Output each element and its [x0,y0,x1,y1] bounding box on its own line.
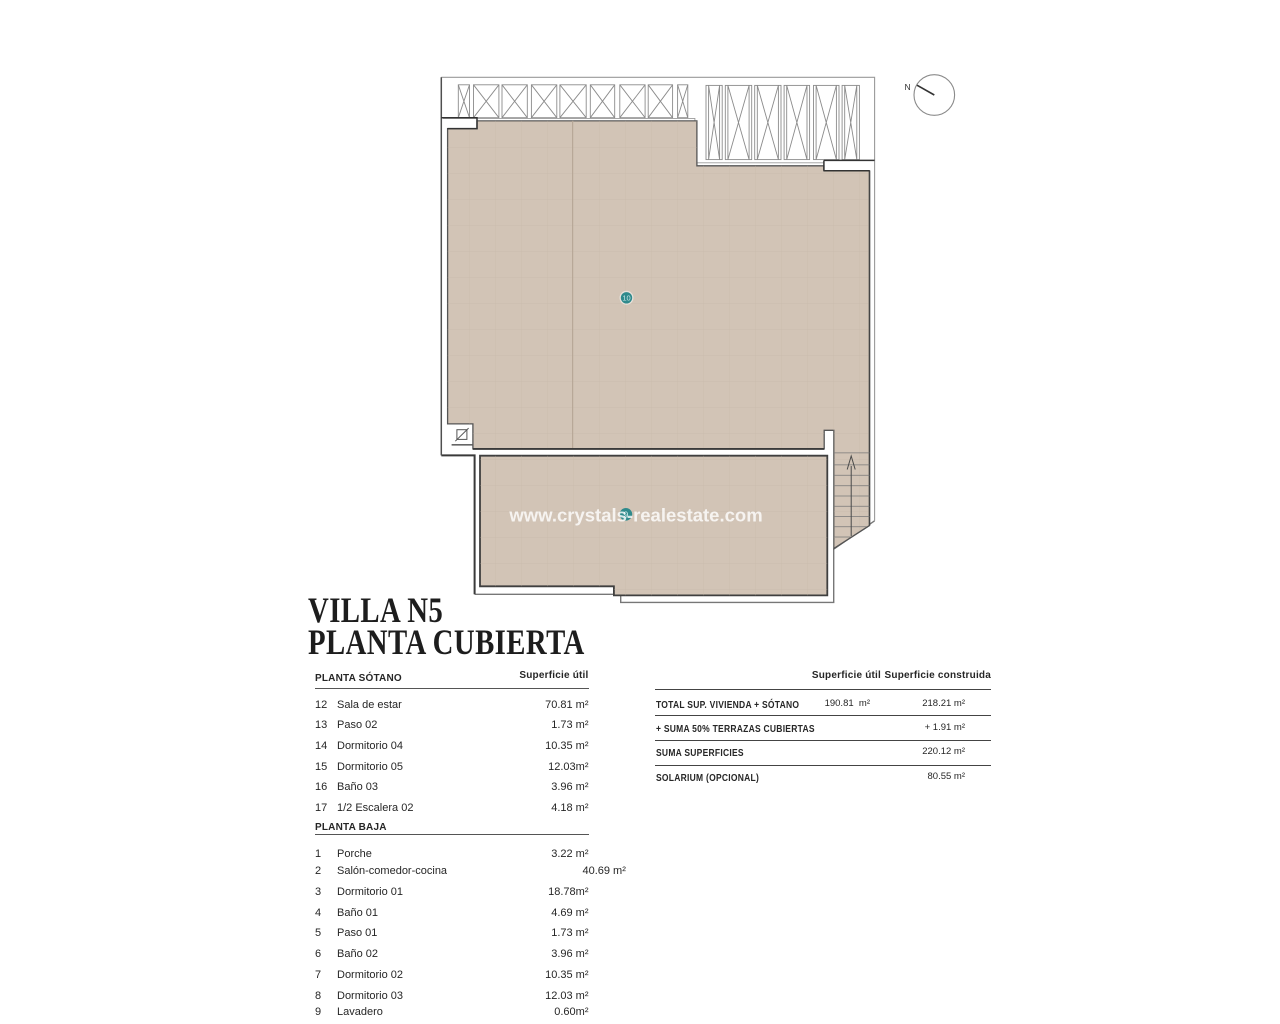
svg-text:10: 10 [622,293,630,302]
svg-text:www.crystals-realestate.com: www.crystals-realestate.com [508,505,762,526]
svg-text:N: N [905,82,911,92]
